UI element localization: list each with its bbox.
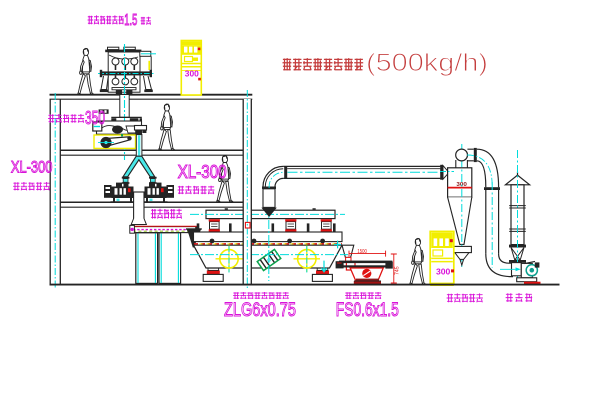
svg-text:XL-300: XL-300 — [11, 157, 53, 176]
svg-text:1500: 1500 — [357, 249, 366, 255]
svg-text:300: 300 — [185, 69, 199, 79]
svg-text:1.5: 1.5 — [124, 12, 137, 29]
svg-text:300: 300 — [436, 267, 451, 277]
svg-text:FS0.6x1.5: FS0.6x1.5 — [336, 299, 399, 321]
svg-text:ZLG6x0.75: ZLG6x0.75 — [224, 299, 296, 321]
svg-text:(500kg/h): (500kg/h) — [366, 49, 488, 77]
svg-text:745: 745 — [395, 266, 401, 275]
svg-text:350: 350 — [85, 107, 105, 128]
svg-text:XL-300: XL-300 — [178, 162, 227, 182]
